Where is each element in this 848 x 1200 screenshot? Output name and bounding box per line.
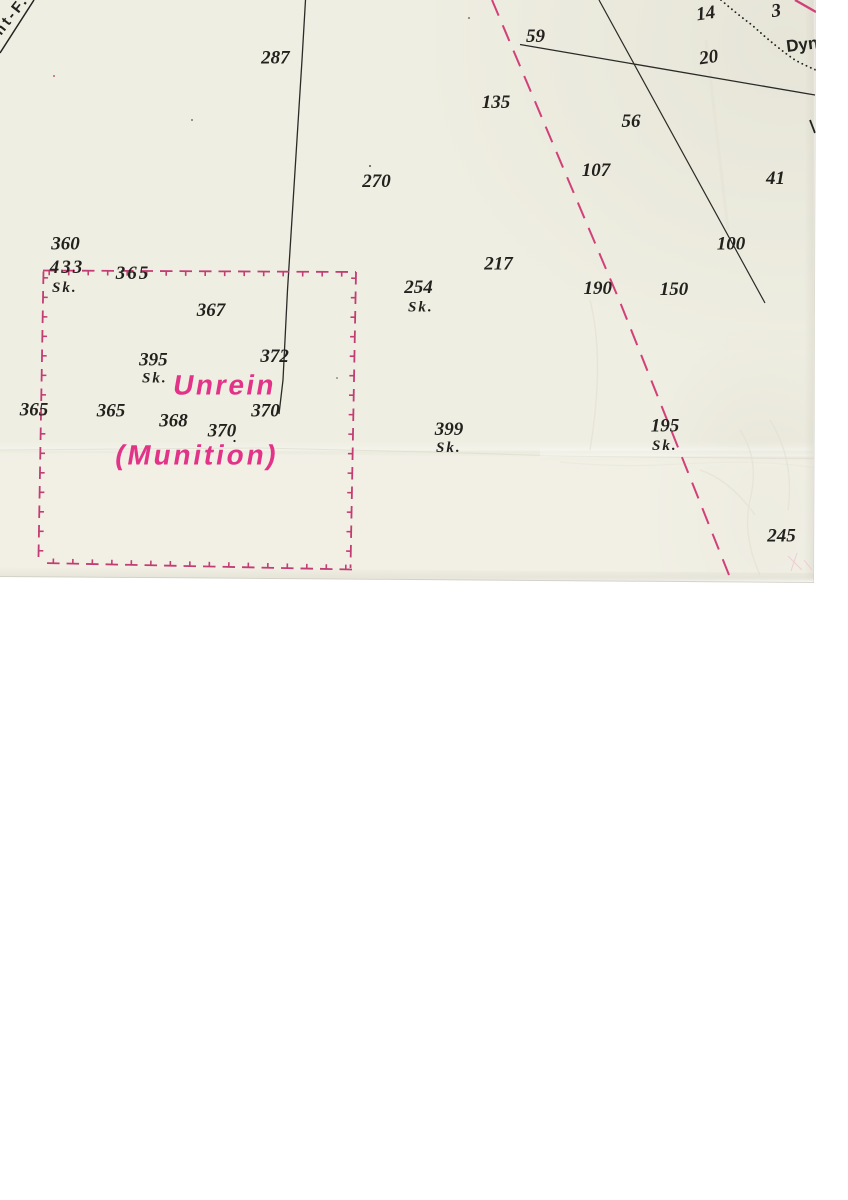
svg-text:Dyn: Dyn bbox=[785, 33, 819, 56]
svg-text:Unrein: Unrein bbox=[171, 369, 279, 401]
svg-text:190: 190 bbox=[584, 278, 613, 299]
svg-text:41: 41 bbox=[765, 168, 785, 189]
svg-text:150: 150 bbox=[660, 279, 689, 300]
svg-text:433: 433 bbox=[49, 257, 85, 278]
svg-text:372: 372 bbox=[259, 346, 289, 367]
svg-text:287: 287 bbox=[260, 48, 291, 69]
svg-text:100: 100 bbox=[717, 234, 746, 255]
svg-text:365: 365 bbox=[19, 400, 49, 421]
svg-text:56: 56 bbox=[622, 111, 642, 132]
svg-text:20: 20 bbox=[697, 46, 720, 70]
svg-text:399: 399 bbox=[434, 419, 464, 440]
svg-text:135: 135 bbox=[482, 92, 511, 113]
svg-text:395: 395 bbox=[138, 350, 168, 371]
svg-text:217: 217 bbox=[483, 254, 514, 275]
svg-text:195: 195 bbox=[651, 416, 680, 437]
svg-text:(Munition): (Munition) bbox=[113, 439, 282, 471]
svg-text:14: 14 bbox=[695, 2, 717, 25]
svg-text:365: 365 bbox=[115, 263, 151, 284]
svg-text:Sk.: Sk. bbox=[436, 440, 462, 456]
svg-text:367: 367 bbox=[196, 300, 227, 321]
svg-text:365: 365 bbox=[96, 401, 126, 422]
svg-text:370: 370 bbox=[250, 401, 280, 422]
svg-text:59: 59 bbox=[526, 26, 546, 47]
svg-text:Sk.: Sk. bbox=[408, 300, 434, 316]
svg-text:254: 254 bbox=[403, 277, 433, 298]
svg-text:270: 270 bbox=[361, 171, 391, 192]
svg-text:107: 107 bbox=[582, 160, 612, 181]
svg-text:Sk.: Sk. bbox=[142, 371, 168, 387]
svg-text:245: 245 bbox=[766, 526, 796, 547]
svg-text:368: 368 bbox=[158, 411, 188, 432]
svg-text:Sk.: Sk. bbox=[652, 438, 678, 454]
svg-text:Sk.: Sk. bbox=[52, 280, 78, 296]
svg-text:360: 360 bbox=[50, 234, 80, 255]
svg-text:370: 370 bbox=[207, 421, 237, 442]
